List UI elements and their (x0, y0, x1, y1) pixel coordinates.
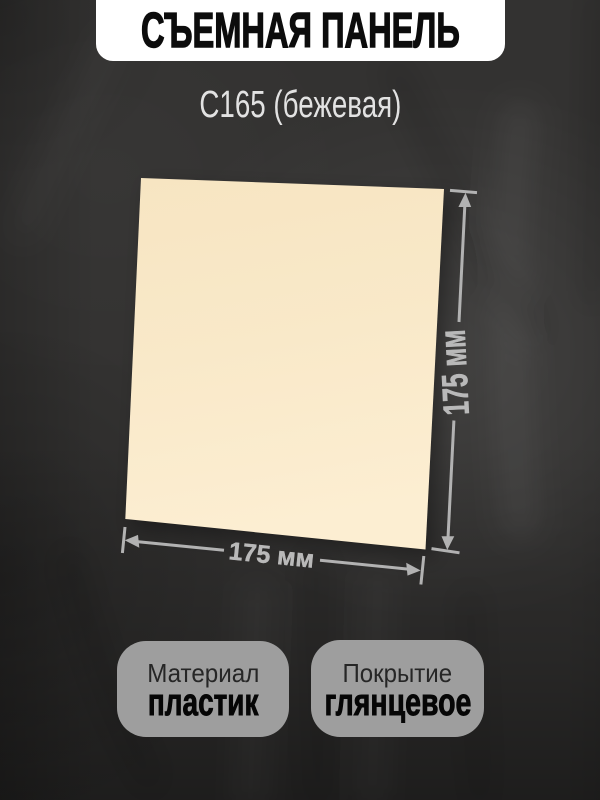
svg-text:175 мм: 175 мм (432, 329, 477, 417)
